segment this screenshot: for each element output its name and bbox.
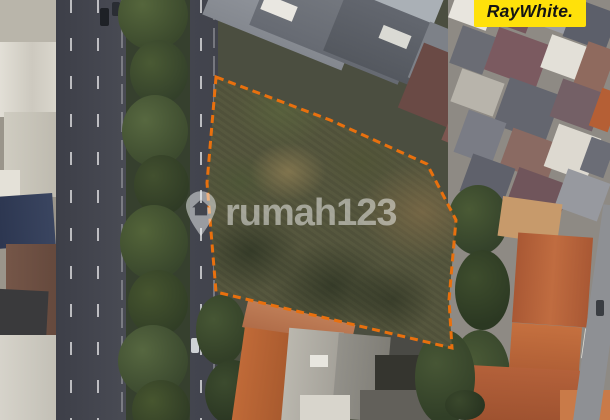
property-listing-photo: rumah123 RayWhite. [0, 0, 610, 420]
agency-logo-text: RayWhite. [487, 0, 573, 23]
agency-logo: RayWhite. [474, 0, 586, 27]
property-boundary [0, 0, 610, 420]
property-boundary-outline [207, 77, 456, 348]
